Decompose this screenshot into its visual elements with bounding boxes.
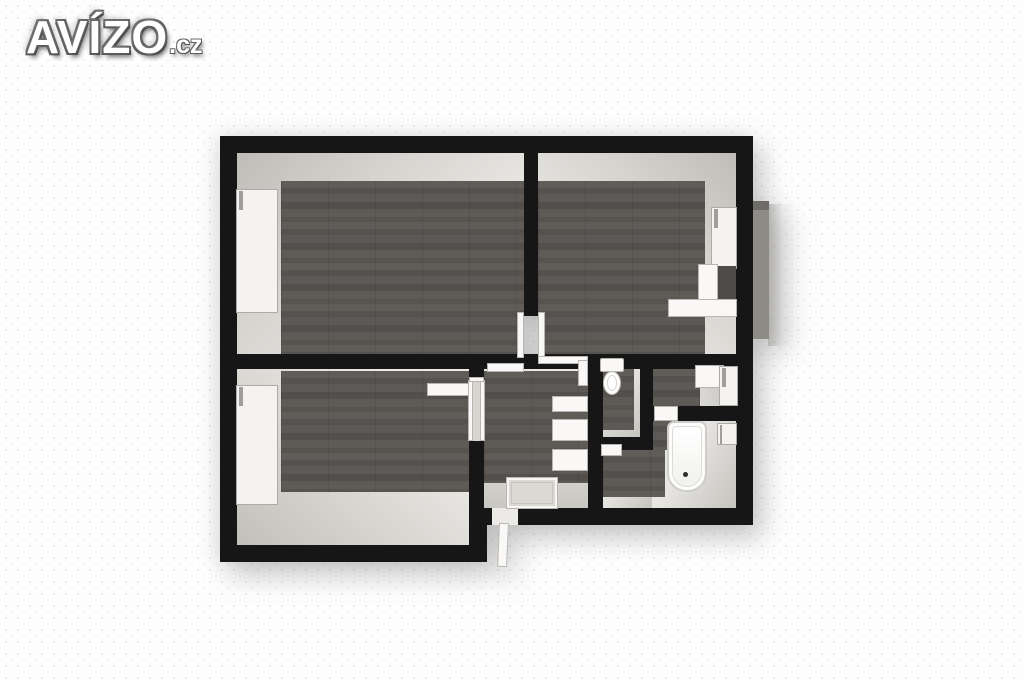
entry-door-leaf: [497, 523, 509, 567]
wall-bottom-left: [220, 545, 487, 562]
room-top-left-floor: [281, 181, 524, 354]
bathroom-floor: [603, 450, 665, 497]
window-top-right-room: [711, 207, 737, 269]
wall-top: [220, 136, 753, 153]
door-jamb: [480, 380, 485, 441]
wall-hall-west-lower: [469, 441, 484, 545]
wall-divider-top-rooms: [524, 153, 538, 316]
page: AVÍZO.cz: [0, 0, 1024, 683]
window-top-left-room: [236, 189, 278, 313]
door-threshold-top-left-room: [487, 363, 524, 372]
bathtub: [667, 421, 707, 492]
floor-plan-image: [0, 0, 1024, 683]
hall-shelf-2: [552, 419, 588, 441]
door-leaf-open-right: [538, 312, 545, 358]
small-room-floor: [652, 369, 700, 406]
desk-top: [668, 299, 737, 317]
hall-shelf-1: [552, 396, 588, 412]
door-threshold-wc: [601, 444, 622, 456]
balcony-shadow: [768, 204, 794, 346]
window-pane: [241, 387, 243, 406]
window-pane: [720, 425, 722, 444]
panel-under-window: [718, 266, 736, 300]
doormat: [507, 478, 557, 508]
wall-left: [220, 136, 237, 562]
toilet-bowl: [603, 371, 621, 395]
window-small-room: [719, 366, 738, 406]
toilet-tank: [600, 358, 624, 372]
desk-side-panel: [698, 264, 718, 304]
wall-right: [736, 136, 753, 525]
hall-shelf-3: [552, 449, 588, 471]
bathtub-inner: [672, 426, 702, 487]
doormat-border: [511, 482, 553, 504]
window-bathroom: [717, 423, 737, 445]
wall-shelf-bottom-left-room: [427, 383, 469, 396]
door-head: [469, 377, 484, 382]
door-jamb-hall-ne: [578, 360, 588, 386]
window-pane: [724, 368, 726, 387]
toilet-seat: [607, 375, 617, 391]
window-pane: [241, 191, 243, 210]
window-pane: [716, 209, 718, 228]
door-threshold-bathroom: [654, 406, 678, 421]
window-bottom-left-room: [236, 385, 278, 505]
room-top-right-floor: [538, 181, 705, 354]
door-leaf-open-left: [517, 312, 524, 358]
bathtub-drain: [683, 472, 688, 477]
